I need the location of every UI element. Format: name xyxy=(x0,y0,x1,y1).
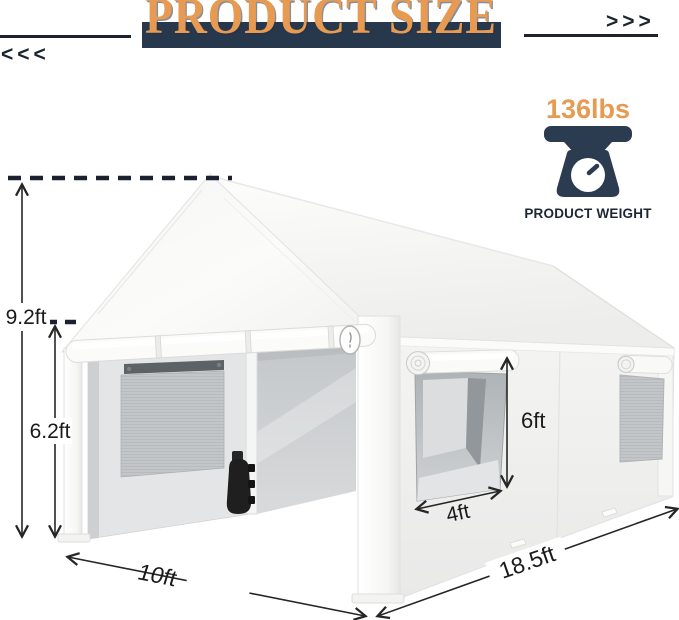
right-pole-foot xyxy=(352,594,404,603)
header-right-chevrons: >>> xyxy=(606,11,655,32)
left-pole-foot xyxy=(58,534,90,542)
interior-mesh-window xyxy=(121,371,224,477)
header-left-line xyxy=(0,35,131,38)
page-title: PRODUCT SIZE xyxy=(145,0,497,43)
front-opening xyxy=(88,341,356,539)
door-height-label: 6ft xyxy=(521,408,545,433)
flap-end-cap xyxy=(618,356,635,373)
weight-label: PRODUCT WEIGHT xyxy=(510,206,666,221)
side-window-rear-flap xyxy=(618,355,673,374)
window-interior-far-wall xyxy=(423,378,468,458)
interior-left-edge-shade xyxy=(88,361,99,539)
eave-height-label: 6.2ft xyxy=(30,420,71,443)
right-front-pole xyxy=(358,316,400,598)
roller-strap xyxy=(328,326,334,348)
front-width-label: 10ft xyxy=(135,559,181,592)
roller-strap xyxy=(245,331,251,353)
peak-height-label: 9.2ft xyxy=(6,306,47,329)
header-left-chevrons: <<< xyxy=(1,44,50,65)
scale-icon xyxy=(538,120,638,208)
flap-end-cap xyxy=(406,351,430,375)
side-window-front-flap xyxy=(406,349,519,375)
window-bar-hook xyxy=(217,363,221,367)
window-bar-hook xyxy=(127,367,131,371)
header-right-line xyxy=(524,34,658,37)
product-diagram: 9.2ft 6.2ft 6ft 4ft 10ft 18.5ft xyxy=(0,0,679,620)
roller-strap xyxy=(155,336,161,358)
side-window-rear-mesh xyxy=(620,375,664,462)
door-width-label: 4ft xyxy=(444,500,472,527)
